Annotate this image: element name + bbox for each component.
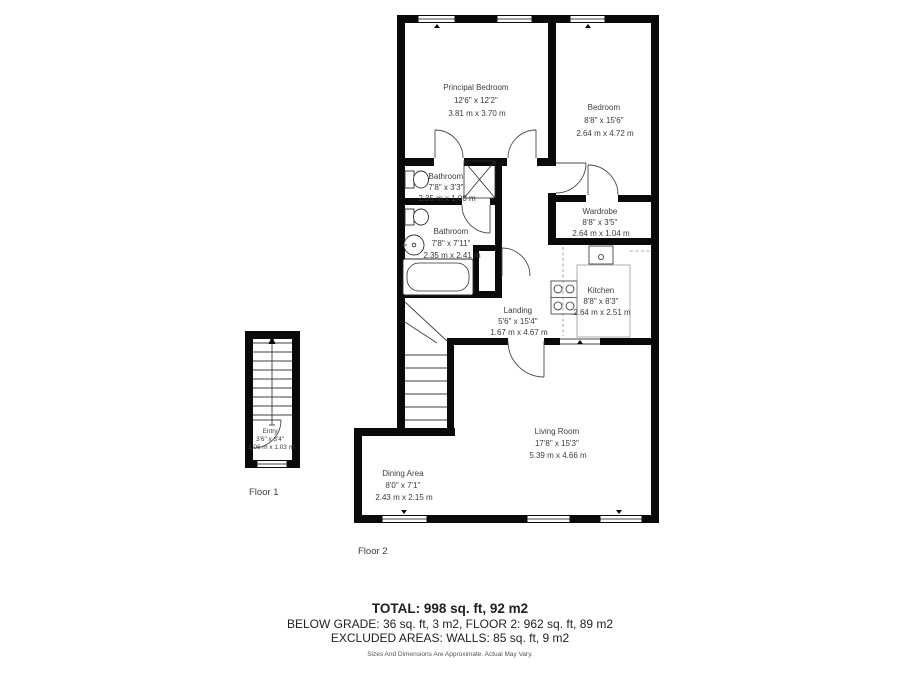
- floor2-stairs: [405, 302, 447, 420]
- floor1-label: Floor 1: [249, 487, 279, 498]
- room-label-kitchen: Kitchen 8'8" x 8'3" 2.64 m x 2.51 m: [573, 286, 631, 317]
- sink-icon: [402, 235, 424, 255]
- bathtub-icon: [403, 259, 473, 295]
- summary-disclaimer: Sizes And Dimensions Are Approximate. Ac…: [0, 651, 900, 658]
- area-summary: TOTAL: 998 sq. ft, 92 m2 BELOW GRADE: 36…: [0, 601, 900, 658]
- shower-icon: [464, 161, 495, 198]
- floorplan-drawing: Principal Bedroom 12'6" x 12'2" 3.81 m x…: [0, 0, 900, 675]
- room-label-living-room: Living Room 17'8" x 15'3" 5.39 m x 4.66 …: [529, 427, 587, 460]
- toilet-icon: [405, 171, 414, 188]
- toilet-icon: [405, 209, 414, 225]
- summary-breakdown: BELOW GRADE: 36 sq. ft, 3 m2, FLOOR 2: 9…: [0, 617, 900, 631]
- stair-direction-arrow: [269, 336, 276, 425]
- floorplan-page: Principal Bedroom 12'6" x 12'2" 3.81 m x…: [0, 0, 900, 675]
- room-label-bathroom-main: Bathroom 7'8" x 7'11" 2.35 m x 2.41 m: [423, 227, 481, 260]
- floor2-label: Floor 2: [358, 546, 388, 557]
- room-label-dining-area: Dining Area 8'0" x 7'1" 2.43 m x 2.15 m: [375, 469, 433, 502]
- room-label-wardrobe: Wardrobe 8'8" x 3'5" 2.64 m x 1.04 m: [572, 207, 630, 238]
- room-label-principal-bedroom: Principal Bedroom 12'6" x 12'2" 3.81 m x…: [443, 83, 511, 118]
- room-label-landing: Landing 5'6" x 15'4" 1.67 m x 4.67 m: [490, 306, 548, 337]
- room-label-entry: Entry 3'6" x 3'4" 1.06 m x 1.03 m: [248, 428, 294, 451]
- kitchen-sink-icon: [589, 246, 613, 264]
- summary-total: TOTAL: 998 sq. ft, 92 m2: [0, 601, 900, 617]
- room-label-bedroom: Bedroom 8'8" x 15'6" 2.64 m x 4.72 m: [576, 103, 634, 138]
- summary-excluded: EXCLUDED AREAS: WALLS: 85 sq. ft, 9 m2: [0, 631, 900, 645]
- room-labels: Principal Bedroom 12'6" x 12'2" 3.81 m x…: [248, 83, 634, 557]
